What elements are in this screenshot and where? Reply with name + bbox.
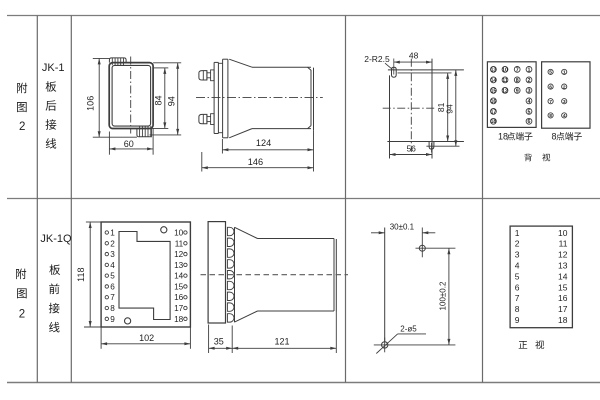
svg-text:1: 1 xyxy=(528,67,531,73)
svg-text:10: 10 xyxy=(558,228,568,238)
svg-text:13: 13 xyxy=(490,67,496,73)
svg-text:1: 1 xyxy=(563,70,566,76)
svg-text:18: 18 xyxy=(174,315,184,324)
svg-text:8: 8 xyxy=(549,113,552,119)
svg-text:56: 56 xyxy=(406,144,416,154)
svg-text:18: 18 xyxy=(558,315,568,325)
svg-text:2: 2 xyxy=(528,78,531,84)
svg-text:13: 13 xyxy=(558,261,568,271)
svg-text:17: 17 xyxy=(490,109,496,115)
svg-text:5: 5 xyxy=(515,271,520,281)
svg-text:JK-1: JK-1 xyxy=(42,62,65,74)
svg-text:9: 9 xyxy=(515,315,520,325)
svg-text:5: 5 xyxy=(549,70,552,76)
svg-text:124: 124 xyxy=(256,138,271,148)
svg-text:11: 11 xyxy=(502,78,508,84)
svg-text:102: 102 xyxy=(139,333,154,343)
svg-text:9: 9 xyxy=(516,88,519,94)
svg-text:8: 8 xyxy=(516,78,519,84)
svg-text:94: 94 xyxy=(445,104,455,114)
svg-text:60: 60 xyxy=(124,139,134,149)
svg-text:2-ø5: 2-ø5 xyxy=(400,325,417,334)
svg-text:6: 6 xyxy=(549,84,552,90)
svg-text:16: 16 xyxy=(558,293,568,303)
svg-text:4: 4 xyxy=(528,99,531,105)
svg-text:30±0.1: 30±0.1 xyxy=(390,222,415,231)
svg-text:2: 2 xyxy=(563,84,566,90)
svg-text:13: 13 xyxy=(174,261,184,270)
svg-text:3: 3 xyxy=(110,250,115,259)
svg-text:2-R2.5: 2-R2.5 xyxy=(364,54,390,64)
svg-text:3: 3 xyxy=(528,88,531,94)
svg-text:11: 11 xyxy=(559,239,568,249)
svg-text:14: 14 xyxy=(174,272,184,281)
svg-text:3: 3 xyxy=(563,99,566,105)
svg-text:7: 7 xyxy=(516,67,519,73)
svg-text:4: 4 xyxy=(110,261,115,270)
svg-text:2: 2 xyxy=(515,239,520,249)
svg-text:7: 7 xyxy=(549,99,552,105)
svg-text:1: 1 xyxy=(110,229,115,238)
svg-text:1: 1 xyxy=(515,228,520,238)
svg-text:18: 18 xyxy=(490,119,496,125)
svg-text:94: 94 xyxy=(166,96,176,106)
svg-text:8: 8 xyxy=(551,132,556,142)
svg-text:146: 146 xyxy=(248,157,263,167)
svg-text:6: 6 xyxy=(528,119,531,125)
svg-text:4: 4 xyxy=(563,113,566,119)
svg-text:16: 16 xyxy=(490,99,496,105)
svg-text:12: 12 xyxy=(502,88,508,94)
svg-text:10: 10 xyxy=(174,229,184,238)
svg-text:106: 106 xyxy=(86,96,96,111)
svg-text:12: 12 xyxy=(558,250,568,260)
svg-text:48: 48 xyxy=(409,51,419,61)
svg-text:14: 14 xyxy=(490,78,496,84)
svg-text:16: 16 xyxy=(174,293,184,302)
svg-text:4: 4 xyxy=(515,261,520,271)
svg-text:18: 18 xyxy=(498,132,508,142)
svg-text:JK-1Q: JK-1Q xyxy=(40,233,72,245)
svg-text:2: 2 xyxy=(110,239,115,248)
svg-text:100±0.2: 100±0.2 xyxy=(439,281,448,310)
svg-text:7: 7 xyxy=(110,293,115,302)
svg-text:11: 11 xyxy=(175,239,184,248)
svg-text:15: 15 xyxy=(558,282,568,292)
svg-text:121: 121 xyxy=(274,337,289,347)
svg-text:15: 15 xyxy=(174,282,184,291)
svg-text:12: 12 xyxy=(174,250,184,259)
svg-text:7: 7 xyxy=(515,293,520,303)
svg-text:5: 5 xyxy=(110,272,115,281)
svg-text:6: 6 xyxy=(515,282,520,292)
svg-text:3: 3 xyxy=(515,250,520,260)
svg-text:5: 5 xyxy=(528,109,531,115)
svg-text:10: 10 xyxy=(502,67,508,73)
svg-text:9: 9 xyxy=(110,315,115,324)
svg-text:8: 8 xyxy=(110,304,115,313)
svg-text:84: 84 xyxy=(154,95,164,105)
svg-text:2: 2 xyxy=(19,121,25,133)
svg-text:17: 17 xyxy=(174,304,184,313)
svg-text:15: 15 xyxy=(490,88,496,94)
svg-text:17: 17 xyxy=(558,304,568,314)
svg-text:14: 14 xyxy=(558,271,568,281)
svg-text:35: 35 xyxy=(214,337,224,347)
svg-text:118: 118 xyxy=(76,268,86,282)
svg-text:2: 2 xyxy=(19,309,25,321)
svg-text:8: 8 xyxy=(515,304,520,314)
svg-text:6: 6 xyxy=(110,282,115,291)
